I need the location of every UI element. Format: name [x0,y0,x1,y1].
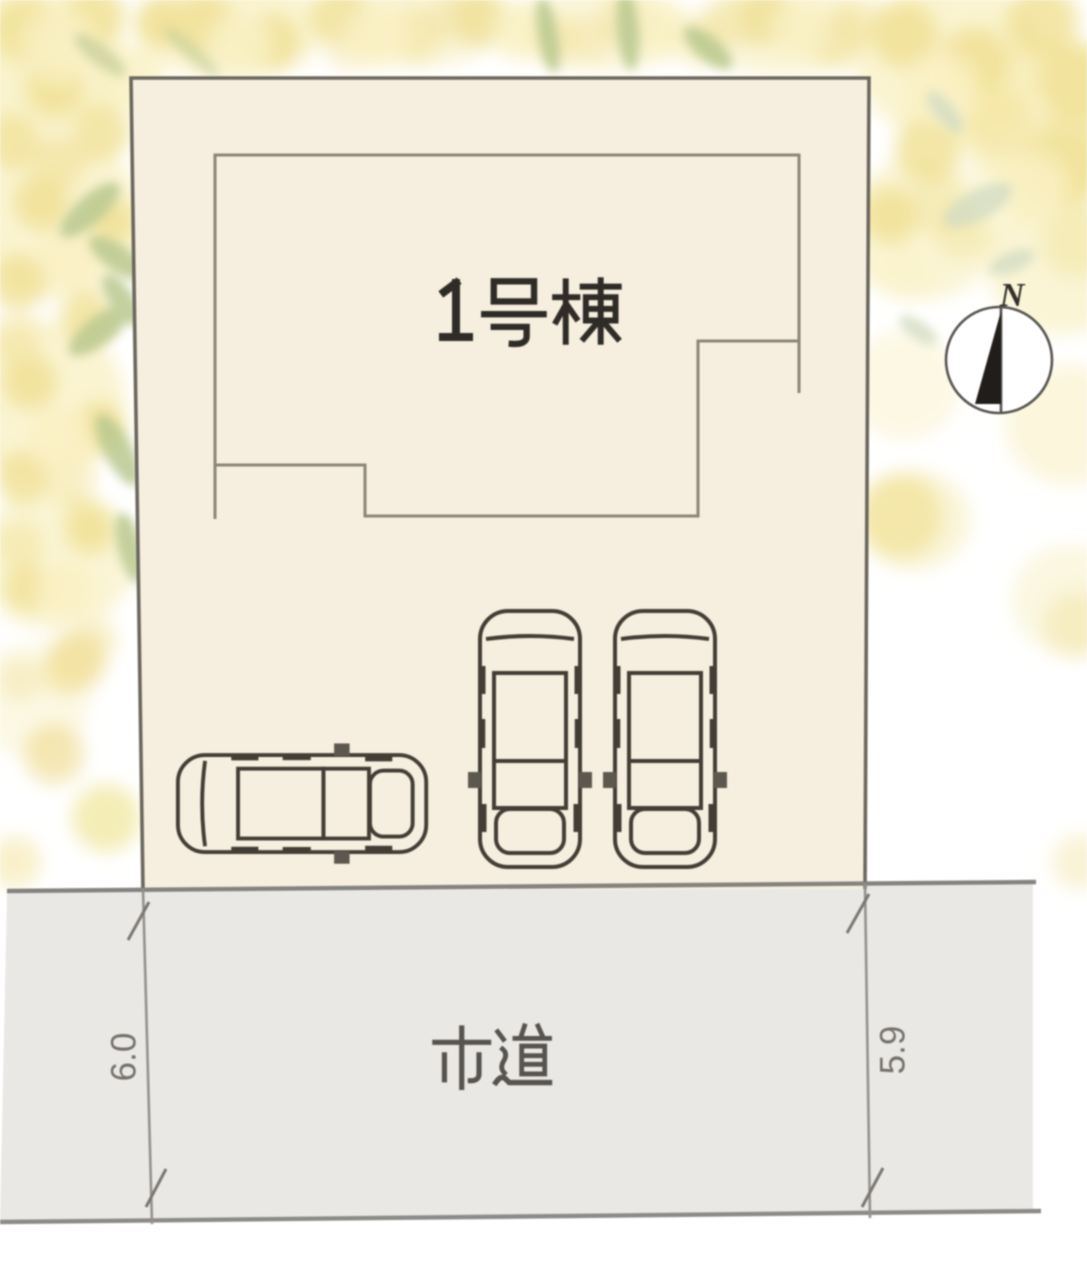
svg-text:5.9: 5.9 [874,1026,913,1075]
svg-text:N: N [999,277,1026,314]
svg-text:6.0: 6.0 [105,1033,144,1082]
